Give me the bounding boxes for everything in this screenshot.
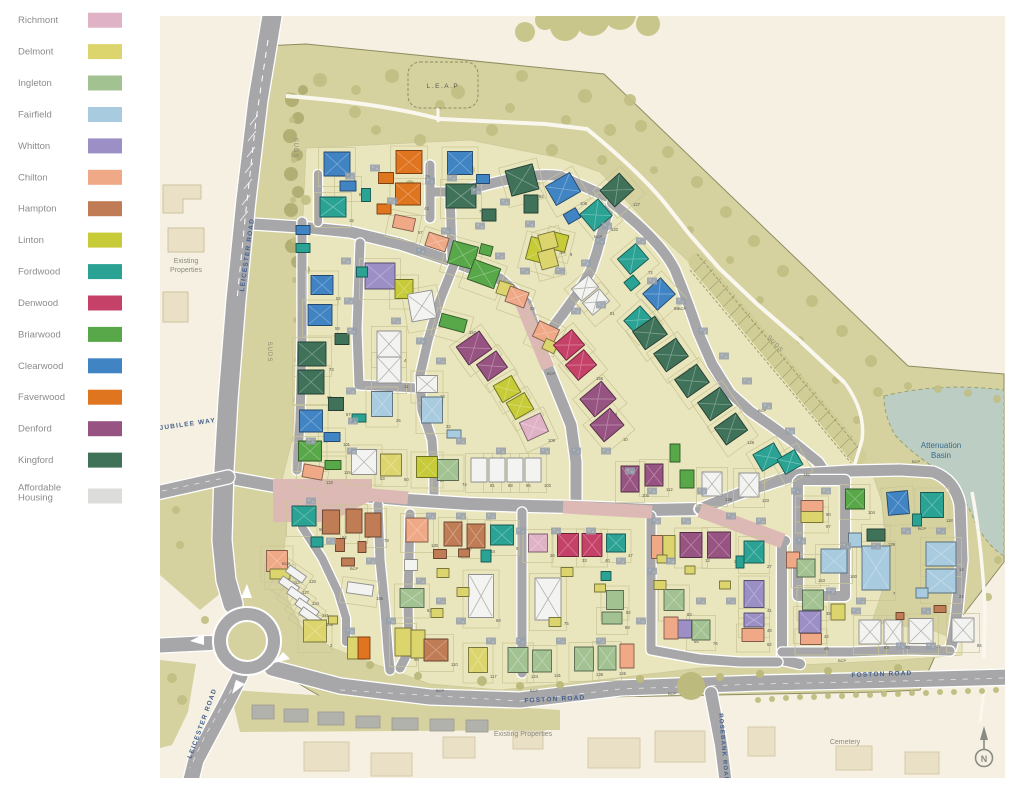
svg-text:27: 27 <box>767 564 772 569</box>
svg-text:160: 160 <box>850 574 858 579</box>
svg-text:115: 115 <box>344 470 351 475</box>
svg-text:78: 78 <box>384 538 389 543</box>
svg-text:Briarwood: Briarwood <box>18 329 61 340</box>
svg-text:Existing Properties: Existing Properties <box>494 731 553 738</box>
svg-text:153: 153 <box>818 578 826 583</box>
svg-text:25: 25 <box>396 418 401 423</box>
svg-text:Chilton: Chilton <box>18 172 48 183</box>
svg-text:73: 73 <box>329 367 334 372</box>
svg-text:84: 84 <box>977 643 982 648</box>
svg-text:87: 87 <box>346 412 351 417</box>
svg-text:131: 131 <box>554 673 562 678</box>
svg-text:BCP: BCP <box>918 526 927 531</box>
svg-text:SUDS: SUDS <box>292 138 298 159</box>
svg-text:Denwood: Denwood <box>18 298 58 309</box>
svg-text:35: 35 <box>826 611 831 616</box>
svg-text:L.E.A.P: L.E.A.P <box>427 83 460 90</box>
svg-text:156: 156 <box>596 376 604 381</box>
svg-text:133: 133 <box>762 498 770 503</box>
svg-text:BCP: BCP <box>838 658 847 663</box>
svg-text:142: 142 <box>803 472 811 477</box>
svg-text:48: 48 <box>767 628 772 633</box>
svg-text:52: 52 <box>336 296 341 301</box>
svg-text:BCP: BCP <box>912 459 921 464</box>
svg-text:21: 21 <box>959 594 964 599</box>
svg-text:57: 57 <box>418 230 423 235</box>
svg-text:81: 81 <box>490 483 495 488</box>
svg-text:15: 15 <box>349 218 354 223</box>
svg-text:90: 90 <box>826 512 831 517</box>
svg-text:68: 68 <box>496 618 501 623</box>
svg-text:Delmont: Delmont <box>18 47 54 58</box>
svg-text:33: 33 <box>582 558 587 563</box>
svg-text:97: 97 <box>826 524 831 529</box>
svg-text:122: 122 <box>326 480 334 485</box>
svg-text:Whitton: Whitton <box>18 141 50 152</box>
svg-text:23: 23 <box>530 306 535 311</box>
svg-text:47: 47 <box>628 553 633 558</box>
svg-text:11: 11 <box>404 384 409 389</box>
svg-text:62: 62 <box>767 642 772 647</box>
svg-text:104: 104 <box>868 510 876 515</box>
svg-text:145: 145 <box>619 671 627 676</box>
svg-text:Cemetery: Cemetery <box>830 739 861 746</box>
svg-text:14: 14 <box>959 567 964 572</box>
svg-text:83: 83 <box>687 612 692 617</box>
svg-text:BCP: BCP <box>350 566 359 571</box>
svg-text:110: 110 <box>451 662 458 667</box>
svg-text:Fordwood: Fordwood <box>18 267 60 278</box>
svg-text:82: 82 <box>626 610 631 615</box>
svg-text:Housing: Housing <box>18 493 53 504</box>
svg-text:10: 10 <box>623 437 628 442</box>
svg-text:BCP: BCP <box>530 688 539 693</box>
svg-text:BCP: BCP <box>594 234 603 239</box>
svg-text:130: 130 <box>431 543 439 548</box>
svg-text:63: 63 <box>884 645 889 650</box>
svg-text:13: 13 <box>705 558 710 563</box>
svg-text:49: 49 <box>824 646 829 651</box>
svg-text:109: 109 <box>548 438 556 443</box>
svg-text:155: 155 <box>376 596 384 601</box>
svg-text:26: 26 <box>550 553 555 558</box>
svg-text:Properties: Properties <box>170 267 202 274</box>
svg-text:Hampton: Hampton <box>18 204 57 215</box>
svg-text:118: 118 <box>946 518 953 523</box>
svg-text:59: 59 <box>335 326 340 331</box>
svg-text:Clearwood: Clearwood <box>18 361 63 372</box>
svg-text:Denford: Denford <box>18 424 52 435</box>
svg-text:Linton: Linton <box>18 235 44 246</box>
svg-text:Kingford: Kingford <box>18 455 53 466</box>
svg-text:Ingleton: Ingleton <box>18 78 52 89</box>
svg-text:42: 42 <box>824 634 829 639</box>
svg-text:72: 72 <box>648 270 653 275</box>
svg-text:43: 43 <box>424 206 429 211</box>
svg-text:101: 101 <box>343 442 351 447</box>
svg-text:53: 53 <box>380 476 385 481</box>
svg-text:Richmont: Richmont <box>18 15 58 26</box>
svg-text:Basin: Basin <box>931 451 951 460</box>
svg-text:51: 51 <box>610 311 615 316</box>
svg-text:127: 127 <box>633 202 641 207</box>
svg-text:128: 128 <box>747 440 755 445</box>
svg-text:BCP: BCP <box>282 561 291 566</box>
svg-text:BCP: BCP <box>678 306 687 311</box>
svg-text:124: 124 <box>531 674 539 679</box>
svg-text:120: 120 <box>309 579 317 584</box>
svg-text:Faverwood: Faverwood <box>18 392 65 403</box>
svg-text:BCP: BCP <box>668 691 677 696</box>
svg-text:Attenuation: Attenuation <box>921 441 961 450</box>
svg-text:Fairfield: Fairfield <box>18 110 52 121</box>
svg-text:74: 74 <box>462 482 467 487</box>
svg-text:126: 126 <box>725 497 733 502</box>
svg-text:40: 40 <box>605 558 610 563</box>
svg-text:76: 76 <box>713 641 718 646</box>
svg-text:N: N <box>981 754 988 764</box>
svg-text:138: 138 <box>596 672 604 677</box>
svg-text:BCP: BCP <box>547 371 556 376</box>
svg-text:102: 102 <box>544 483 552 488</box>
svg-text:120: 120 <box>611 227 619 232</box>
svg-text:134: 134 <box>312 601 320 606</box>
svg-text:89: 89 <box>625 625 630 630</box>
svg-text:75: 75 <box>564 621 569 626</box>
svg-text:Existing: Existing <box>174 258 199 265</box>
svg-text:77: 77 <box>936 644 941 649</box>
svg-text:BCP: BCP <box>758 408 767 413</box>
svg-text:95: 95 <box>526 483 531 488</box>
svg-text:88: 88 <box>508 483 513 488</box>
svg-text:106: 106 <box>580 201 588 206</box>
svg-text:SUDS: SUDS <box>266 342 272 363</box>
svg-text:60: 60 <box>404 477 409 482</box>
svg-text:41: 41 <box>767 608 772 613</box>
svg-text:BCP: BCP <box>436 688 445 693</box>
svg-text:32: 32 <box>446 424 451 429</box>
svg-text:117: 117 <box>490 674 497 679</box>
svg-text:112: 112 <box>666 487 673 492</box>
svg-text:92: 92 <box>539 194 544 199</box>
